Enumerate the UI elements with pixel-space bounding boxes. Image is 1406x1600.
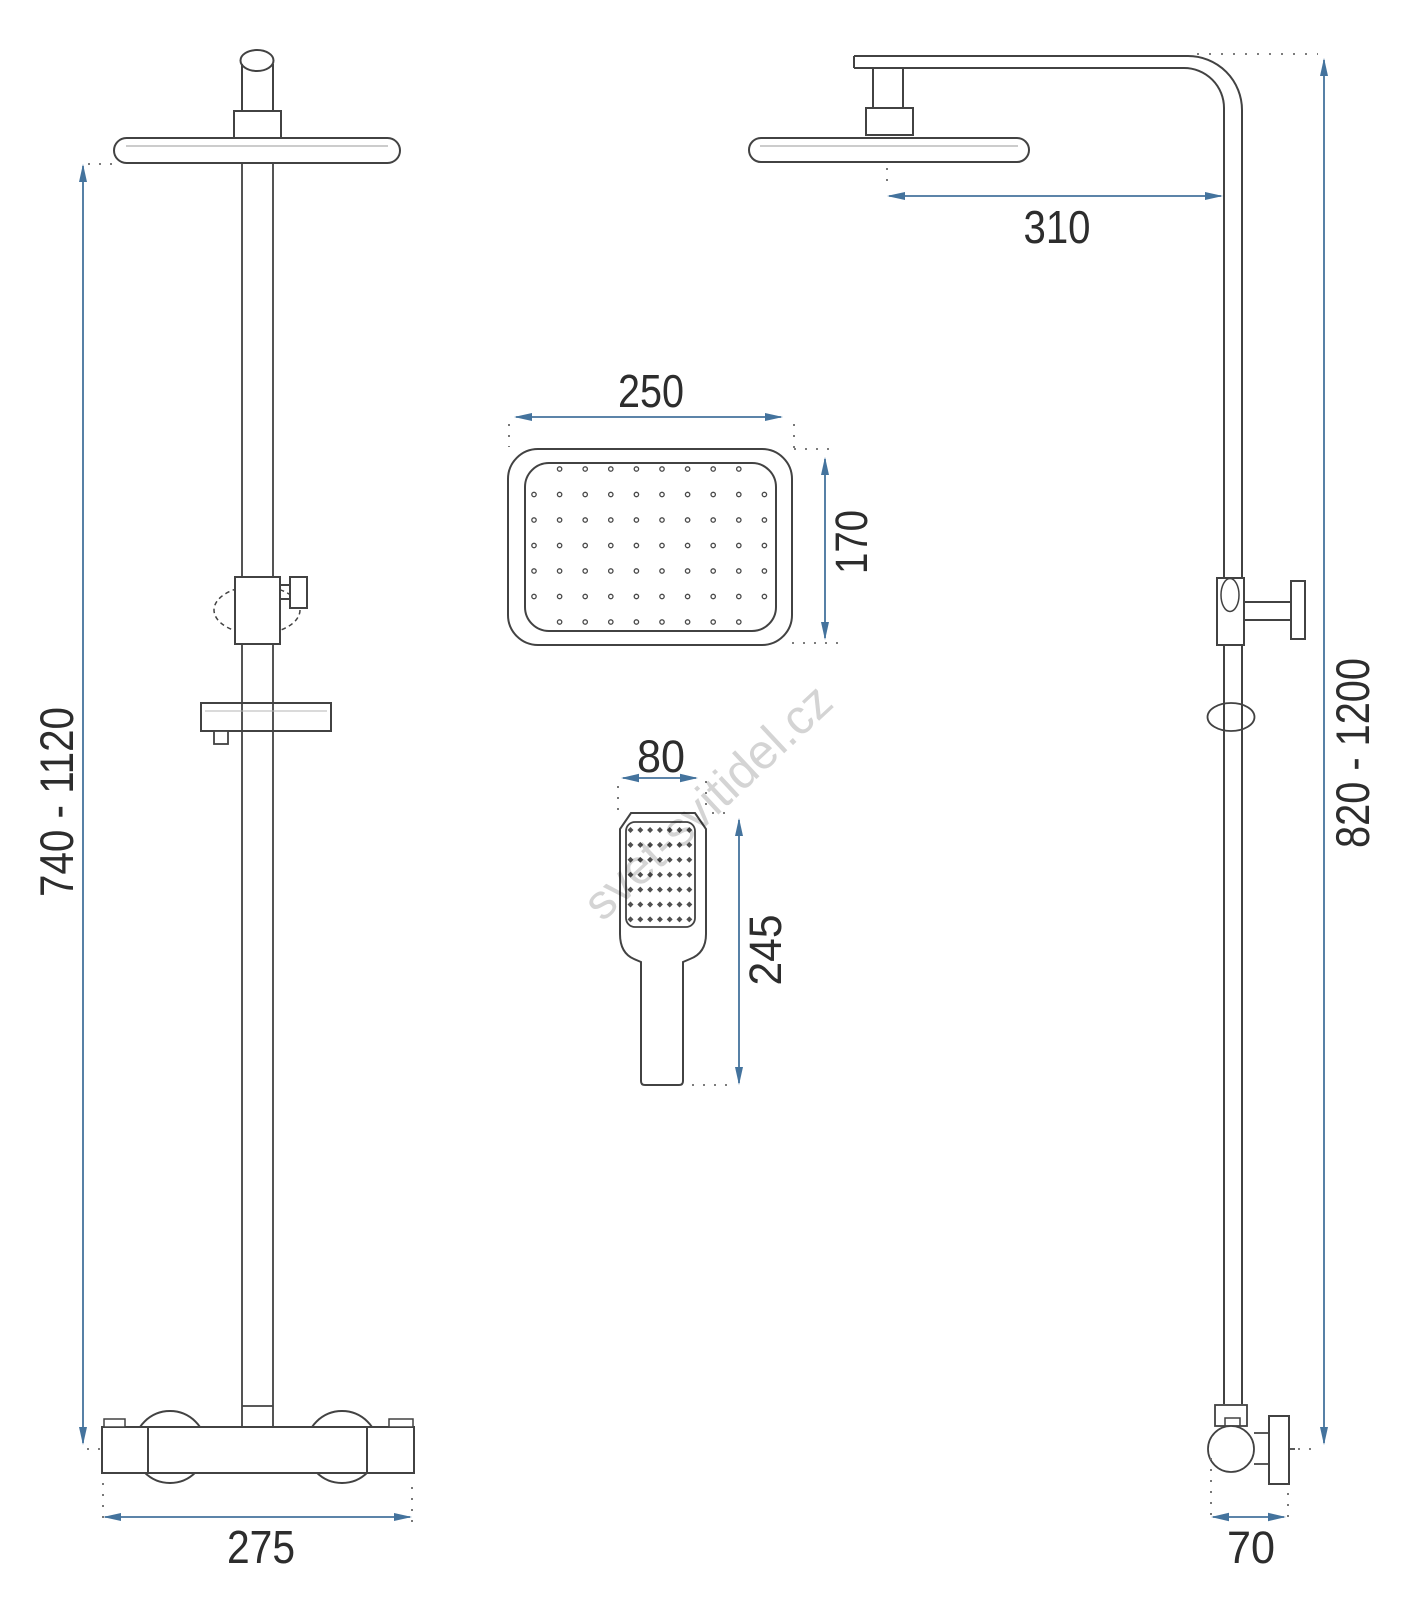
svg-text:820 - 1200: 820 - 1200 bbox=[1326, 658, 1379, 848]
svg-text:80: 80 bbox=[637, 731, 685, 782]
svg-text:250: 250 bbox=[618, 365, 684, 417]
svg-text:70: 70 bbox=[1227, 1522, 1275, 1573]
svg-text:170: 170 bbox=[826, 510, 877, 574]
svg-text:275: 275 bbox=[227, 1521, 295, 1573]
svg-text:245: 245 bbox=[740, 915, 791, 986]
svg-text:740 - 1120: 740 - 1120 bbox=[30, 707, 83, 897]
svg-text:310: 310 bbox=[1024, 201, 1091, 253]
